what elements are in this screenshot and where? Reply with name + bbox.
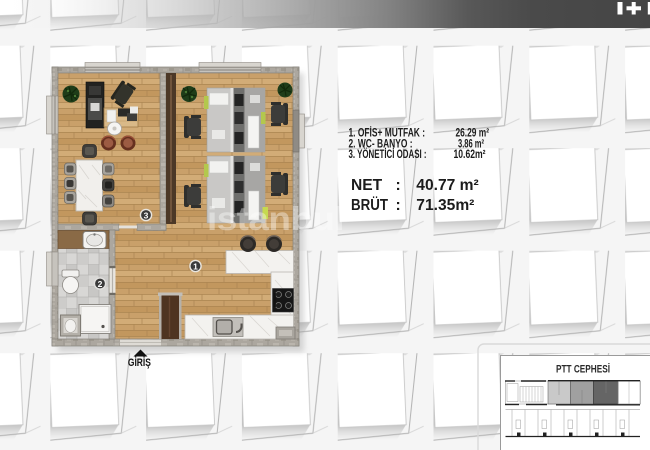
svg-text::: : — [396, 177, 401, 194]
svg-text:BRÜT: BRÜT — [351, 195, 388, 214]
svg-text::: : — [396, 197, 401, 214]
svg-text:3. YÖNETİCİ ODASI :: 3. YÖNETİCİ ODASI : — [349, 146, 427, 161]
svg-text:NET: NET — [351, 177, 383, 194]
svg-text:istanbul: istanbul — [207, 200, 344, 237]
svg-text:PTT CEPHESİ: PTT CEPHESİ — [556, 363, 610, 376]
svg-text:GİRİŞ: GİRİŞ — [128, 356, 151, 369]
svg-text:1: 1 — [193, 261, 198, 271]
svg-text:71.35m²: 71.35m² — [416, 197, 474, 214]
svg-text:40.77 m²: 40.77 m² — [416, 177, 478, 194]
svg-text:3: 3 — [144, 210, 149, 220]
svg-text:2: 2 — [98, 279, 103, 289]
svg-text:10.62m²: 10.62m² — [454, 147, 486, 161]
